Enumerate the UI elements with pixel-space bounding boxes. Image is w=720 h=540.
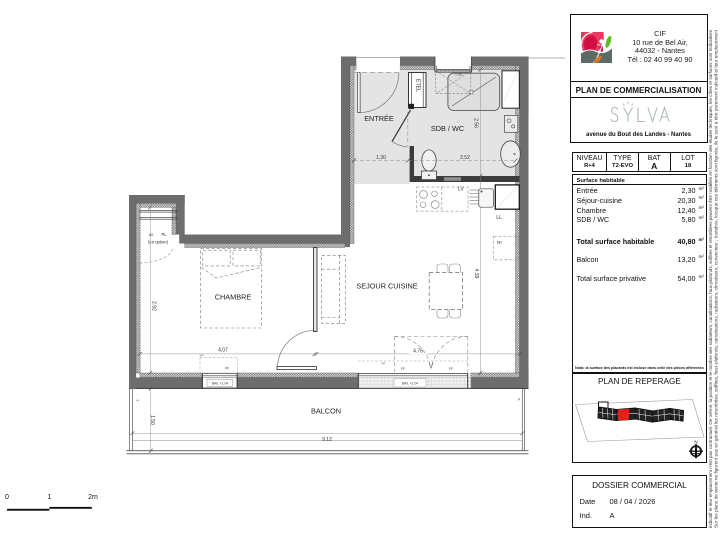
svg-text:BALCON: BALCON — [311, 407, 341, 416]
svg-text:0: 0 — [5, 494, 9, 501]
svg-text:2m: 2m — [88, 494, 98, 501]
svg-text:indicatif et leur emplacement: indicatif et leur emplacement n'est pas … — [708, 30, 713, 528]
svg-text:80: 80 — [149, 233, 153, 237]
svg-text:1.50: 1.50 — [149, 415, 155, 425]
svg-text:LV: LV — [458, 187, 464, 193]
svg-text:PF: PF — [225, 367, 229, 371]
svg-text:CHAMBRE: CHAMBRE — [215, 293, 252, 302]
svg-text:Sur les plans de vente ne figu: Sur les plans de vente ne figurent pas e… — [713, 29, 718, 528]
svg-text:PL: PL — [161, 232, 167, 237]
svg-text:(en option): (en option) — [148, 240, 169, 245]
svg-text:SDB / WC: SDB / WC — [431, 124, 464, 133]
svg-text:N: N — [694, 440, 697, 445]
svg-text:VR: VR — [381, 362, 386, 366]
svg-text:1.06: 1.06 — [455, 73, 462, 77]
svg-text:1: 1 — [47, 494, 51, 501]
svg-text:P: P — [518, 398, 521, 402]
svg-text:2.92: 2.92 — [150, 301, 156, 311]
svg-text:BAIL +1.04: BAIL +1.04 — [402, 382, 418, 386]
svg-text:BAIL +1.04: BAIL +1.04 — [212, 382, 228, 386]
svg-text:1.30: 1.30 — [376, 155, 386, 161]
svg-text:RI: RI — [497, 240, 502, 245]
svg-text:FF: FF — [401, 367, 405, 371]
svg-text:ETEL: ETEL — [415, 79, 421, 92]
svg-text:2.56: 2.56 — [473, 118, 479, 128]
svg-text:4.39: 4.39 — [473, 269, 479, 279]
svg-text:2.52: 2.52 — [460, 155, 470, 161]
svg-text:4.07: 4.07 — [218, 348, 228, 354]
svg-text:4.76: 4.76 — [413, 349, 423, 355]
svg-text:2: 2 — [136, 400, 140, 402]
svg-text:ENTRÉE: ENTRÉE — [364, 114, 394, 123]
svg-text:FF: FF — [449, 367, 453, 371]
svg-text:SEJOUR CUISINE: SEJOUR CUISINE — [356, 282, 417, 291]
svg-text:9.12: 9.12 — [322, 437, 332, 443]
svg-text:LL: LL — [496, 215, 502, 221]
